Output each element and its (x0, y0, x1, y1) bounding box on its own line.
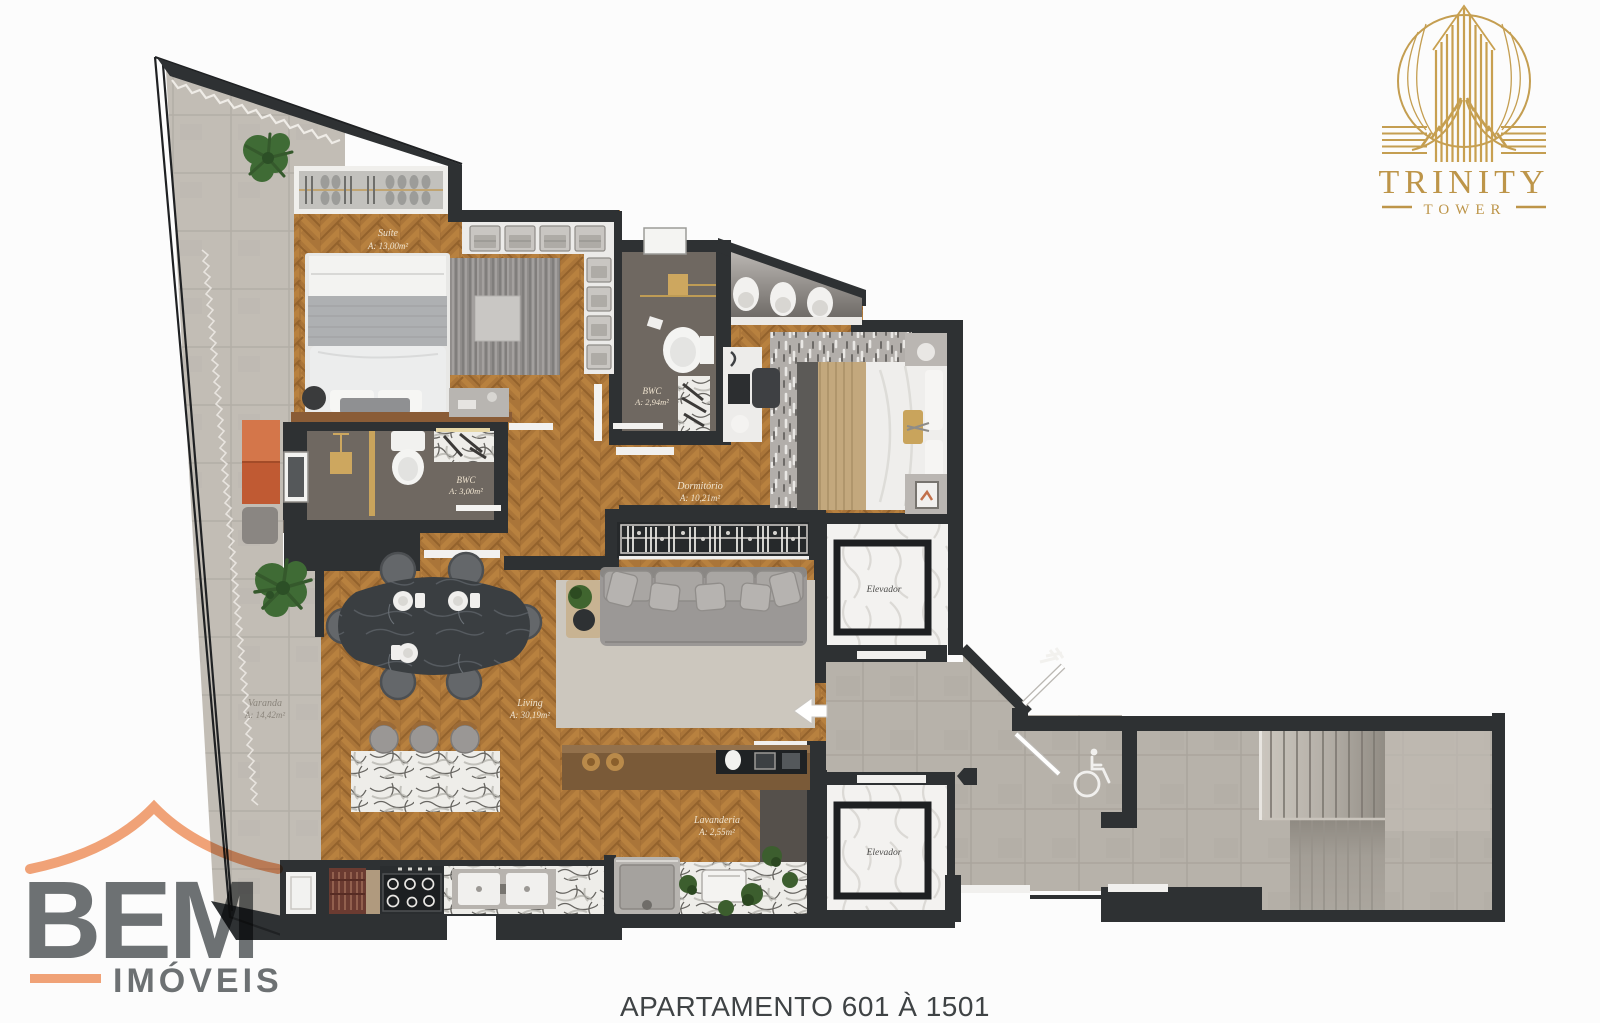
svg-text:TRINITY: TRINITY (1379, 164, 1550, 201)
svg-text:Suíte: Suíte (378, 228, 399, 239)
svg-text:Living: Living (516, 698, 543, 709)
svg-text:A: 3,00m²: A: 3,00m² (448, 486, 483, 496)
svg-text:Elevador: Elevador (866, 585, 902, 595)
svg-text:A: 14,42m²: A: 14,42m² (244, 710, 285, 720)
svg-text:BWC: BWC (643, 386, 663, 396)
svg-text:TOWER: TOWER (1423, 202, 1506, 218)
svg-text:Lavanderia: Lavanderia (693, 815, 740, 826)
svg-text:Dormitório: Dormitório (676, 481, 723, 492)
svg-text:A: 10,21m²: A: 10,21m² (679, 493, 720, 503)
svg-text:A: 2,94m²: A: 2,94m² (634, 397, 669, 407)
svg-text:Varanda: Varanda (248, 698, 282, 709)
svg-text:Elevador: Elevador (866, 848, 902, 858)
svg-text:A: 13,00m²: A: 13,00m² (367, 241, 408, 251)
svg-text:BWC: BWC (457, 475, 477, 485)
svg-text:A: 2,55m²: A: 2,55m² (698, 827, 735, 837)
svg-text:A: 30,19m²: A: 30,19m² (509, 710, 550, 720)
